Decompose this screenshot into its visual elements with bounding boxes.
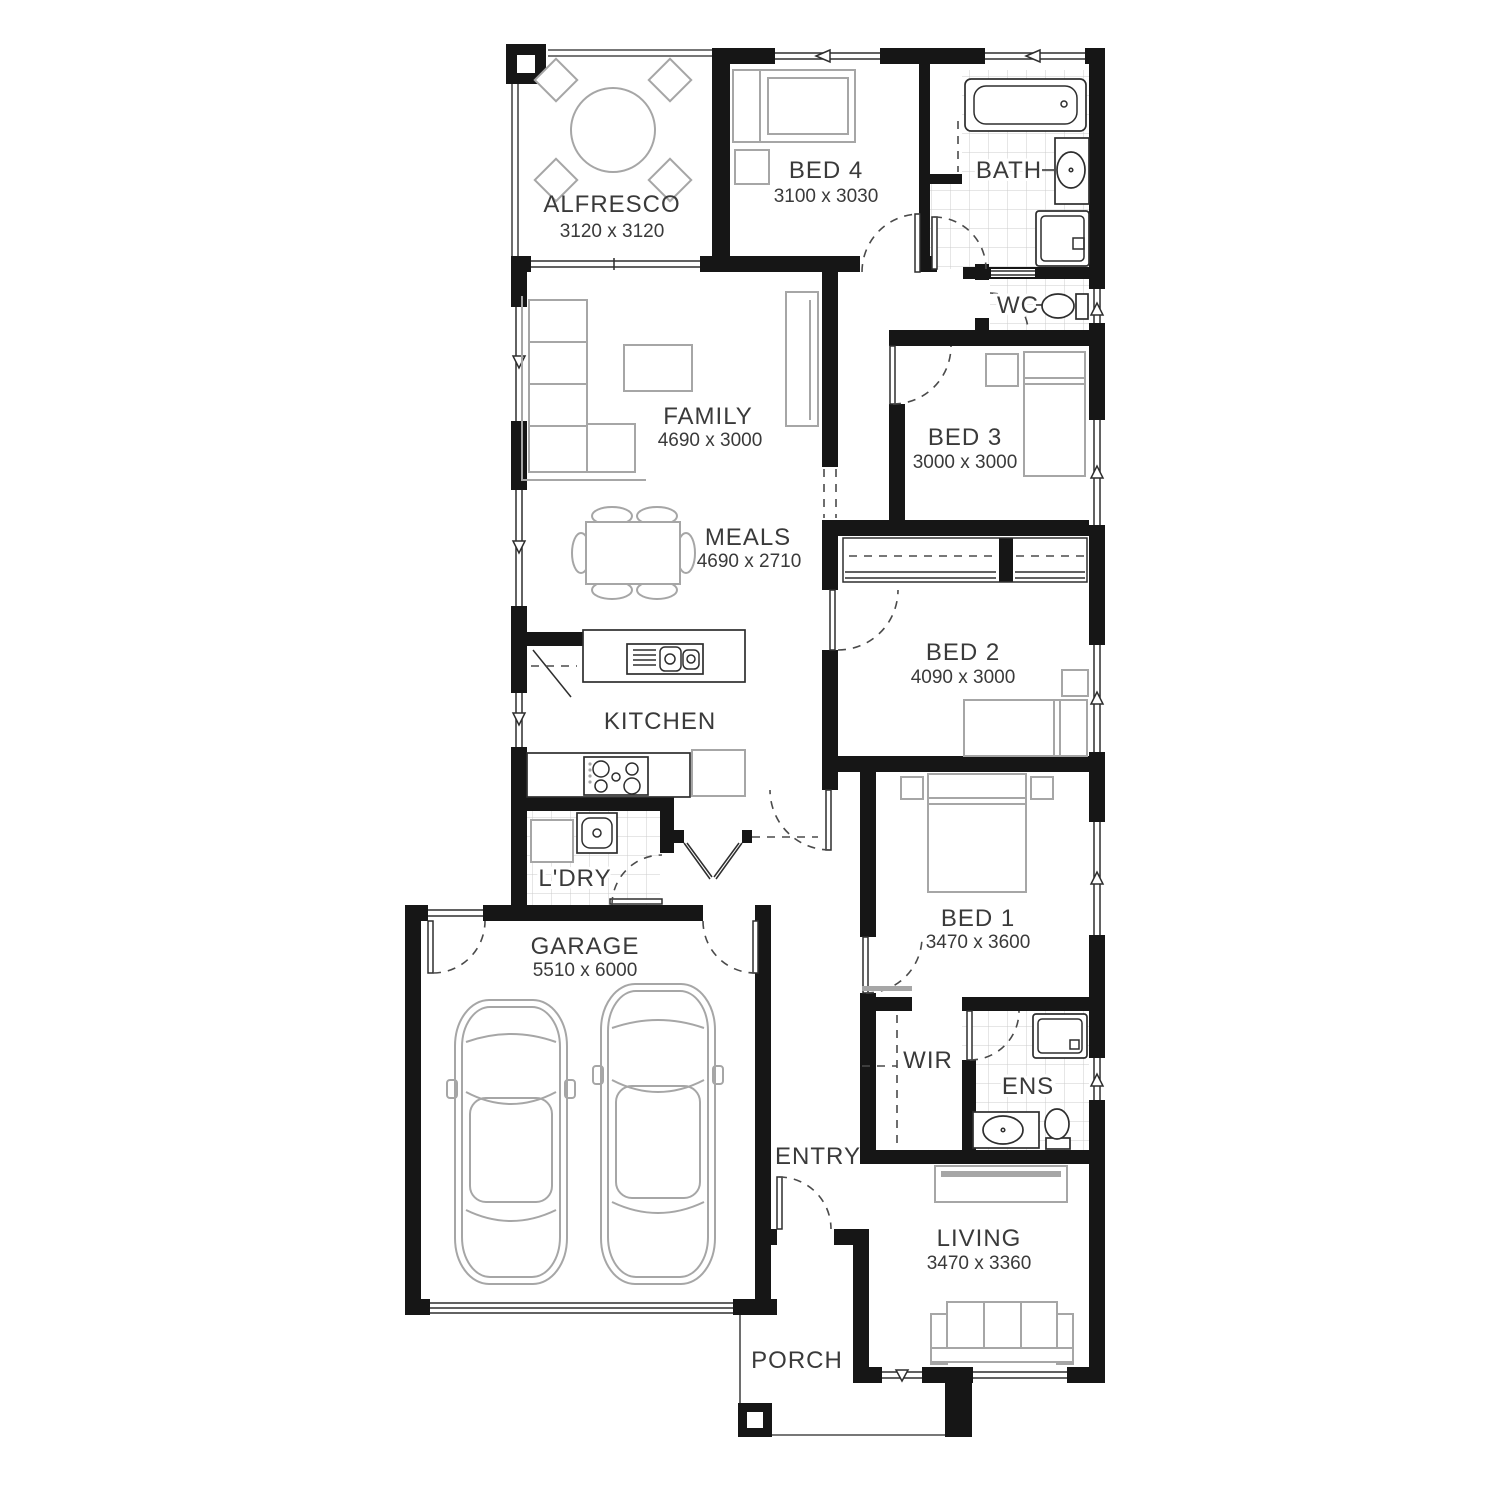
room-dims-family: 4690 x 3000 <box>658 430 763 451</box>
room-dims-bed1: 3470 x 3600 <box>926 932 1031 953</box>
floorplan-canvas: ALFRESCO 3120 x 3120 BED 4 3100 x 3030 B… <box>0 0 1500 1500</box>
room-label-garage: GARAGE <box>531 933 640 960</box>
double-doors-linen <box>684 843 742 879</box>
room-label-ldry: L'DRY <box>538 865 611 892</box>
wc-top-ledge <box>991 269 1035 277</box>
bathtub <box>965 79 1086 131</box>
vent-living-bottom <box>882 1367 922 1383</box>
room-label-wir: WIR <box>903 1047 953 1074</box>
window-bed3-right <box>1089 420 1105 525</box>
room-label-bed1: BED 1 <box>941 905 1015 932</box>
window-bath-top <box>985 48 1085 64</box>
ens-vanity <box>973 1112 1039 1148</box>
door-bed2 <box>830 590 898 650</box>
room-label-bed3: BED 3 <box>928 424 1002 451</box>
window-bed4-top <box>775 48 880 64</box>
room-label-meals: MEALS <box>705 524 791 551</box>
tv-unit <box>786 292 818 426</box>
double-sink <box>627 644 703 674</box>
floor-plan: ALFRESCO 3120 x 3120 BED 4 3100 x 3030 B… <box>0 0 1500 1500</box>
slider-alfresco <box>531 256 700 272</box>
ens-toilet <box>1045 1109 1070 1149</box>
window-kitchen-left <box>511 693 527 747</box>
robes <box>843 538 1087 582</box>
window-family-left <box>511 307 527 421</box>
room-label-bed2: BED 2 <box>926 639 1000 666</box>
door-hall <box>770 790 831 850</box>
car <box>593 984 723 1284</box>
cooktop <box>584 757 648 795</box>
bath-shower <box>1036 211 1089 266</box>
room-label-wc: WC <box>997 292 1039 319</box>
pantry <box>692 750 745 796</box>
room-dims-garage: 5510 x 6000 <box>533 960 638 981</box>
room-label-ens: ENS <box>1002 1073 1054 1100</box>
room-label-bath: BATH <box>976 157 1042 184</box>
laundry-cabinet <box>531 820 573 862</box>
room-label-entry: ENTRY <box>775 1143 861 1170</box>
room-dims-bed2: 4090 x 3000 <box>911 667 1016 688</box>
ens-shower <box>1033 1014 1087 1058</box>
wc-toilet <box>1042 294 1088 319</box>
bath-vanity <box>1055 138 1089 204</box>
car <box>447 1000 575 1284</box>
window-wc-right <box>1089 289 1105 323</box>
room-label-bed4: BED 4 <box>789 157 863 184</box>
living-sofa <box>931 1302 1073 1364</box>
door-bed3 <box>890 346 951 404</box>
window-bed1-right <box>1089 822 1105 935</box>
room-label-porch: PORCH <box>751 1347 843 1374</box>
cased-opening-family <box>824 469 836 518</box>
window-bed2-right <box>1089 645 1105 752</box>
window-ens-right <box>1089 1058 1105 1100</box>
kitchen-island <box>583 630 745 682</box>
room-label-kitchen: KITCHEN <box>604 708 716 735</box>
window-meals-left <box>511 490 527 606</box>
bed1-bed <box>862 774 1053 991</box>
door-entry-front <box>777 1177 831 1229</box>
door-garage-house <box>703 921 758 973</box>
room-dims-bed4: 3100 x 3030 <box>774 186 879 207</box>
room-dims-meals: 4690 x 2710 <box>697 551 802 572</box>
door-garage-side <box>428 921 485 973</box>
garage-door-panel <box>430 1299 733 1315</box>
window-garage-side-door <box>428 905 483 921</box>
laundry-tub <box>577 813 617 853</box>
room-label-alfresco: ALFRESCO <box>543 191 680 218</box>
window-living-bottom <box>973 1367 1067 1383</box>
door-bed1 <box>863 937 922 993</box>
room-dims-bed3: 3000 x 3000 <box>913 452 1018 473</box>
room-label-family: FAMILY <box>663 403 753 430</box>
door-kitchen-corner <box>531 650 577 697</box>
room-dims-alfresco: 3120 x 3120 <box>560 221 665 242</box>
coffee-table <box>624 345 692 391</box>
room-label-living: LIVING <box>937 1225 1022 1252</box>
room-dims-living: 3470 x 3360 <box>927 1253 1032 1274</box>
kitchen-bench <box>527 753 690 797</box>
door-bed4 <box>862 214 920 272</box>
tv-cabinet <box>935 1166 1067 1202</box>
alfresco-setting <box>535 59 691 201</box>
dining-table <box>572 507 695 599</box>
